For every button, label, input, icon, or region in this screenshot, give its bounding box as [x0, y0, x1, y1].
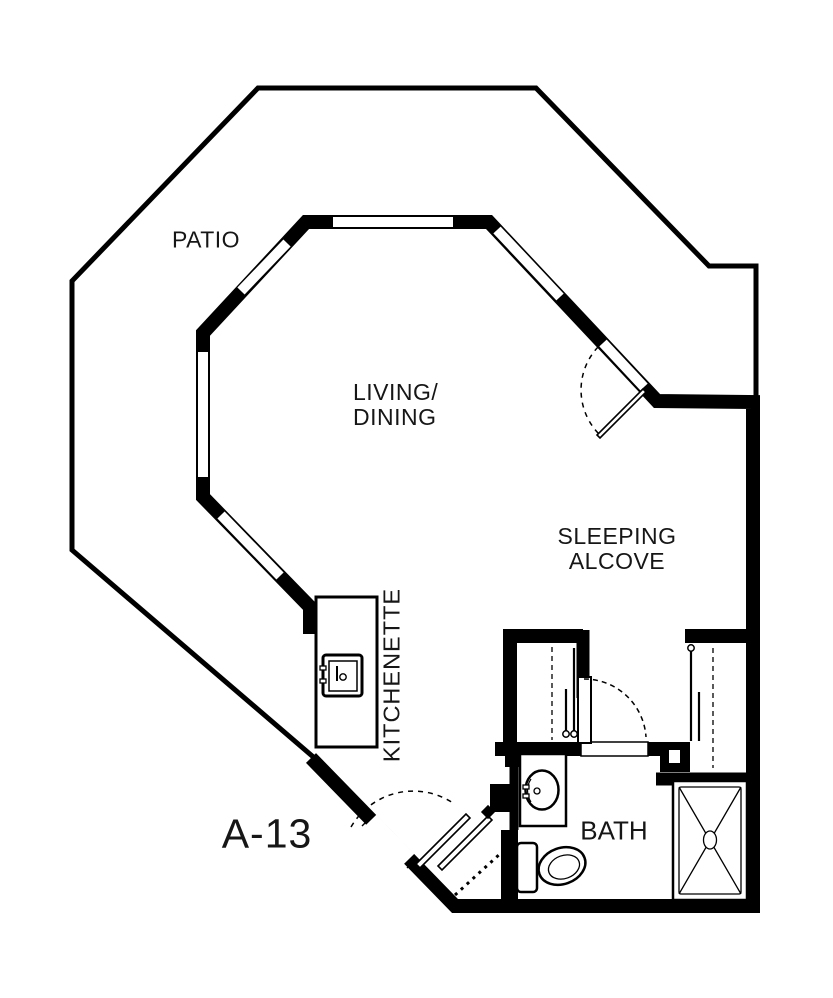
closet-right — [688, 645, 713, 768]
kitchenette-sink-icon — [320, 655, 362, 696]
unit-number-label: A-13 — [222, 811, 313, 858]
floor-plan: PATIO LIVING/ DINING SLEEPING ALCOVE KIT… — [0, 0, 833, 998]
kitchenette-counter — [316, 597, 377, 747]
bath-vanity — [520, 754, 566, 826]
shower-icon — [673, 781, 747, 900]
sleeping-alcove-label-line1: SLEEPING — [557, 523, 676, 550]
living-dining-label-line2: DINING — [353, 404, 437, 431]
kitchenette-label: KITCHENETTE — [379, 588, 406, 762]
sleeping-alcove-label-line2: ALCOVE — [569, 548, 665, 575]
wall-notch — [669, 750, 680, 763]
exterior-walls — [203, 222, 753, 906]
bath-door — [578, 677, 648, 756]
bath-label: BATH — [580, 816, 647, 847]
living-dining-label-line1: LIVING/ — [353, 379, 438, 406]
patio-label: PATIO — [172, 227, 240, 254]
closet-left — [552, 647, 577, 740]
toilet-icon — [517, 841, 591, 892]
floor-plan-drawing — [0, 0, 833, 998]
